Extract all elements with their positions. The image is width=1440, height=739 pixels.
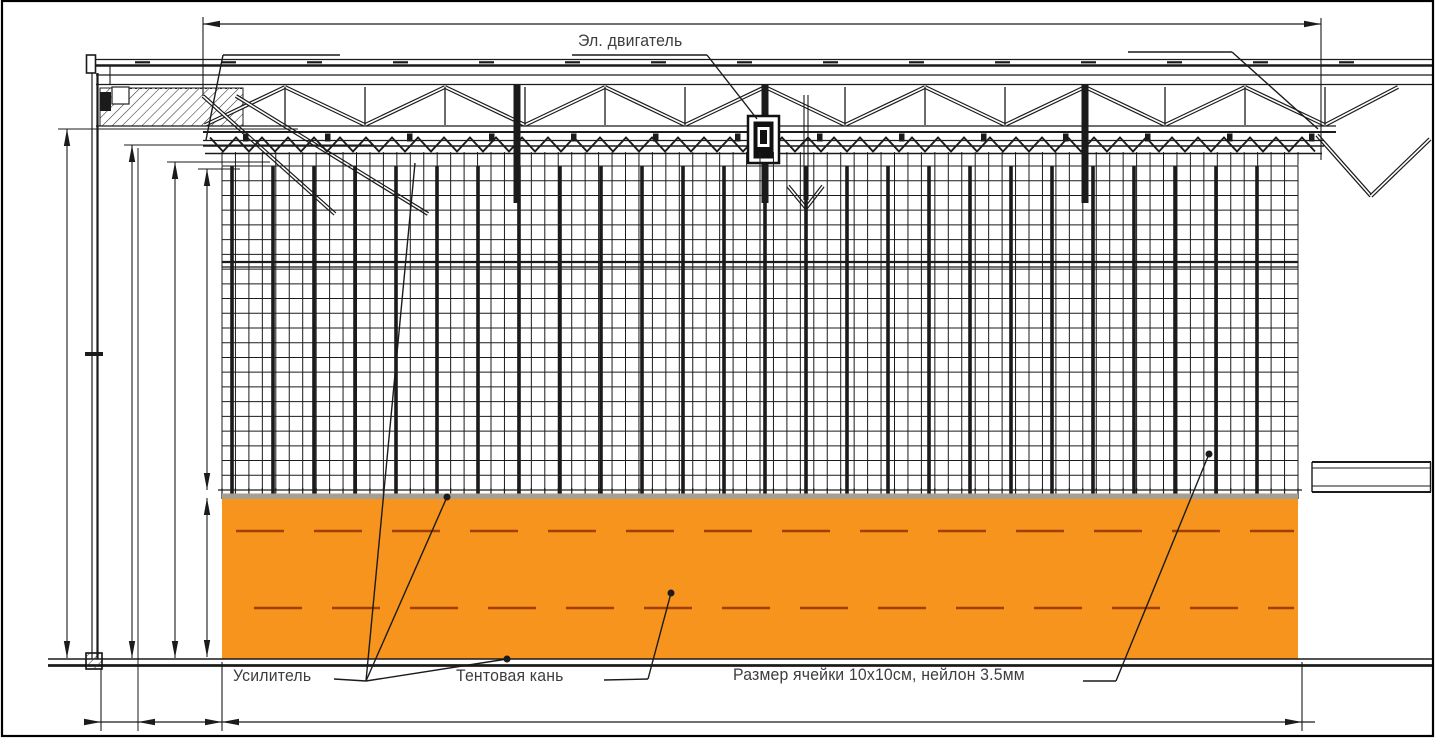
right-wall-rail [1312, 462, 1431, 492]
tent-fabric [222, 494, 1298, 660]
truss-top-chord [96, 66, 1432, 85]
roof-edge [87, 55, 1433, 73]
net-mesh [218, 152, 1302, 499]
drawing-canvas [0, 0, 1440, 739]
wall-lintel-section [100, 87, 243, 126]
label-reinforcement: Усилитель [233, 666, 311, 686]
motor-assembly [748, 95, 823, 208]
label-mesh-spec: Размер ячейки 10х10см, нейлон 3.5мм [733, 665, 1025, 685]
label-electric-motor: Эл. двигатель [578, 31, 682, 51]
left-wall [85, 73, 103, 659]
technical-drawing-page: Эл. двигатель Усилитель Тентовая кань Ра… [0, 0, 1440, 739]
label-tent-fabric: Тентовая кань [456, 666, 564, 686]
